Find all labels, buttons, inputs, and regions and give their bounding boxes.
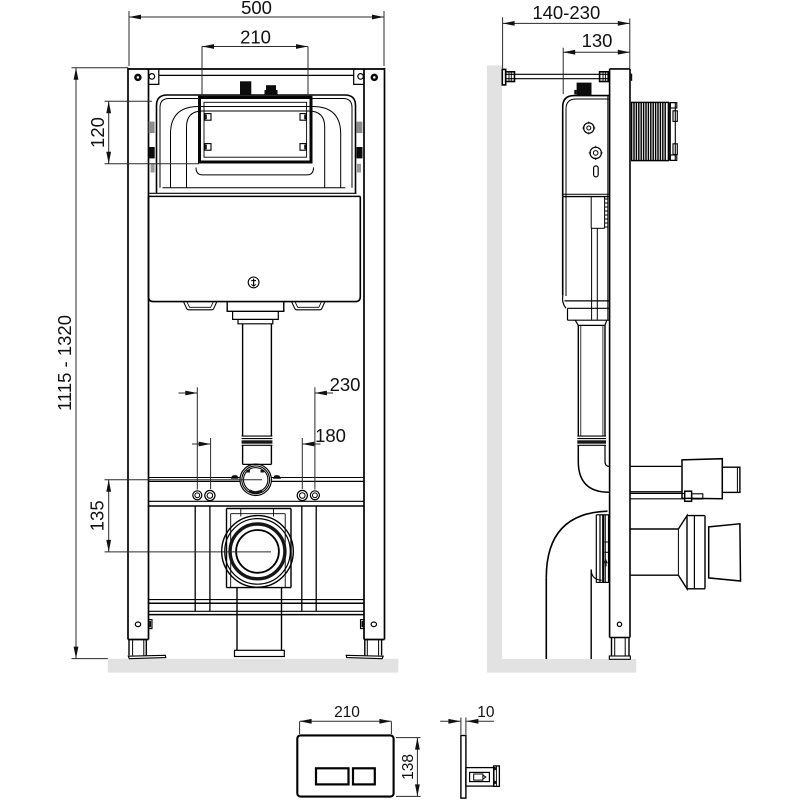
svg-text:500: 500 <box>241 0 272 18</box>
svg-text:180: 180 <box>315 425 346 446</box>
svg-text:230: 230 <box>330 374 361 395</box>
svg-text:130: 130 <box>582 30 613 51</box>
svg-text:138: 138 <box>400 754 417 780</box>
svg-text:135: 135 <box>87 500 108 531</box>
svg-text:140-230: 140-230 <box>532 2 600 23</box>
svg-text:10: 10 <box>477 704 495 721</box>
svg-text:120: 120 <box>87 117 108 148</box>
svg-text:210: 210 <box>334 704 360 721</box>
svg-text:210: 210 <box>240 26 271 47</box>
svg-text:1115 - 1320: 1115 - 1320 <box>54 315 75 411</box>
